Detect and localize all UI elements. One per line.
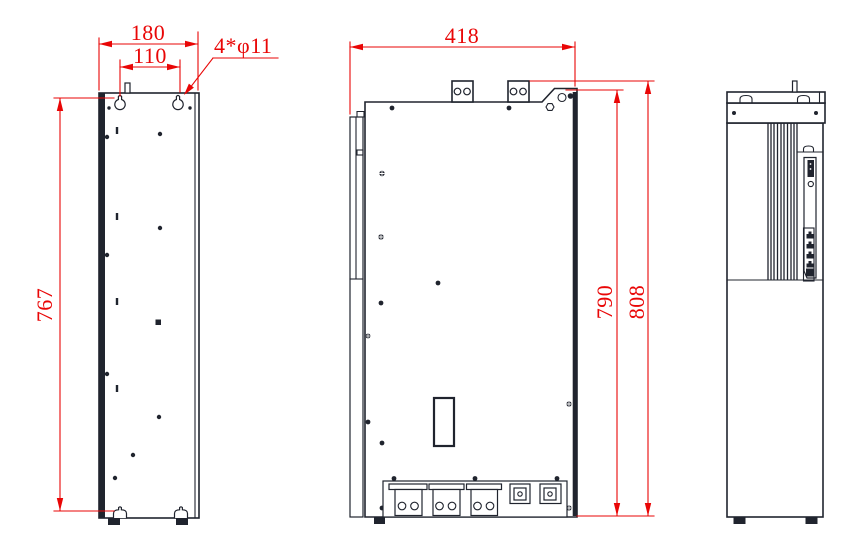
mounting-tab <box>452 81 473 102</box>
left-side-view <box>99 83 199 525</box>
engineering-drawing: 180 110 4*φ11 767 <box>0 0 865 560</box>
foot <box>806 517 818 524</box>
mounting-tab <box>508 81 529 102</box>
right-side-view <box>727 81 825 524</box>
mounting-plate-edge <box>99 93 105 518</box>
terminal-block <box>429 484 464 516</box>
hole-note-label: 4*φ11 <box>214 33 272 58</box>
top-bracket-bar <box>727 103 825 123</box>
foot <box>374 517 385 524</box>
dim-label-180: 180 <box>131 20 166 45</box>
top-pin <box>793 81 798 92</box>
screw <box>568 93 574 99</box>
terminal-block <box>467 484 502 516</box>
foot <box>734 517 746 524</box>
dim-label-790: 790 <box>592 285 617 320</box>
ground-lug <box>540 484 561 504</box>
front-view <box>350 81 577 524</box>
foot <box>108 518 120 525</box>
ground-lug <box>510 484 530 504</box>
terminal-block <box>389 484 427 516</box>
cable-cutout <box>434 398 454 446</box>
dim-label-808: 808 <box>624 285 649 320</box>
dim-label-418: 418 <box>445 23 480 48</box>
drawing-canvas: 180 110 4*φ11 767 <box>0 0 865 560</box>
terminal-block-assembly <box>383 481 567 517</box>
top-tab <box>125 83 130 93</box>
dim-label-767: 767 <box>32 288 57 323</box>
top-band <box>727 92 825 103</box>
foot <box>176 518 188 525</box>
dim-label-110: 110 <box>133 43 167 68</box>
